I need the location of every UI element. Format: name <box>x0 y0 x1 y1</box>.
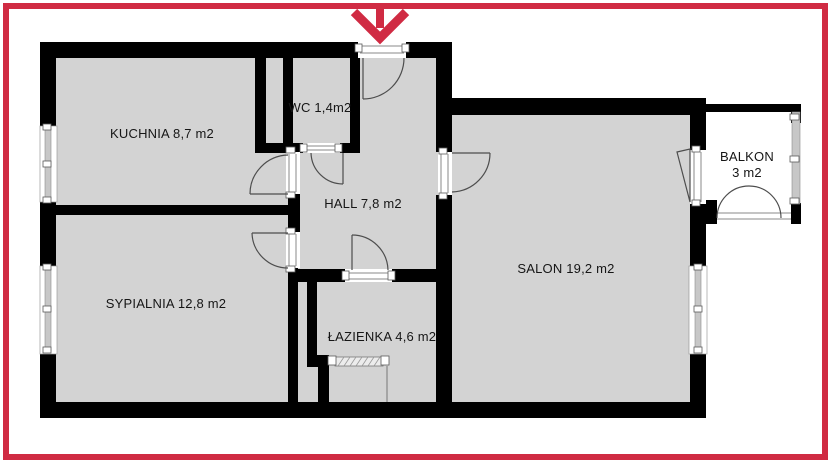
entrance-arrow <box>354 6 406 38</box>
room-label-kuchnia: KUCHNIA 8,7 m2 <box>110 126 214 141</box>
room-label-balkon-area: 3 m2 <box>732 165 762 180</box>
room-label-sypialnia: SYPIALNIA 12,8 m2 <box>106 296 226 311</box>
balcony-railing <box>790 112 800 204</box>
room-label-salon: SALON 19,2 m2 <box>517 261 614 276</box>
balcony-french-doors <box>717 186 791 219</box>
room-label-wc: WC 1,4m2 <box>288 100 351 115</box>
salon-window <box>689 264 707 354</box>
room-label-lazienka: ŁAZIENKA 4,6 m2 <box>328 329 437 344</box>
floor-plan-svg: KUCHNIA 8,7 m2 WC 1,4m2 HALL 7,8 m2 SYPI… <box>0 0 832 470</box>
floor-plan-image: KUCHNIA 8,7 m2 WC 1,4m2 HALL 7,8 m2 SYPI… <box>0 0 832 470</box>
bedroom-window <box>40 264 57 354</box>
entrance-arrow-stem <box>376 6 384 28</box>
room-label-balkon: BALKON <box>720 149 774 164</box>
room-label-hall: HALL 7,8 m2 <box>324 196 402 211</box>
kitchen-window <box>40 124 57 203</box>
